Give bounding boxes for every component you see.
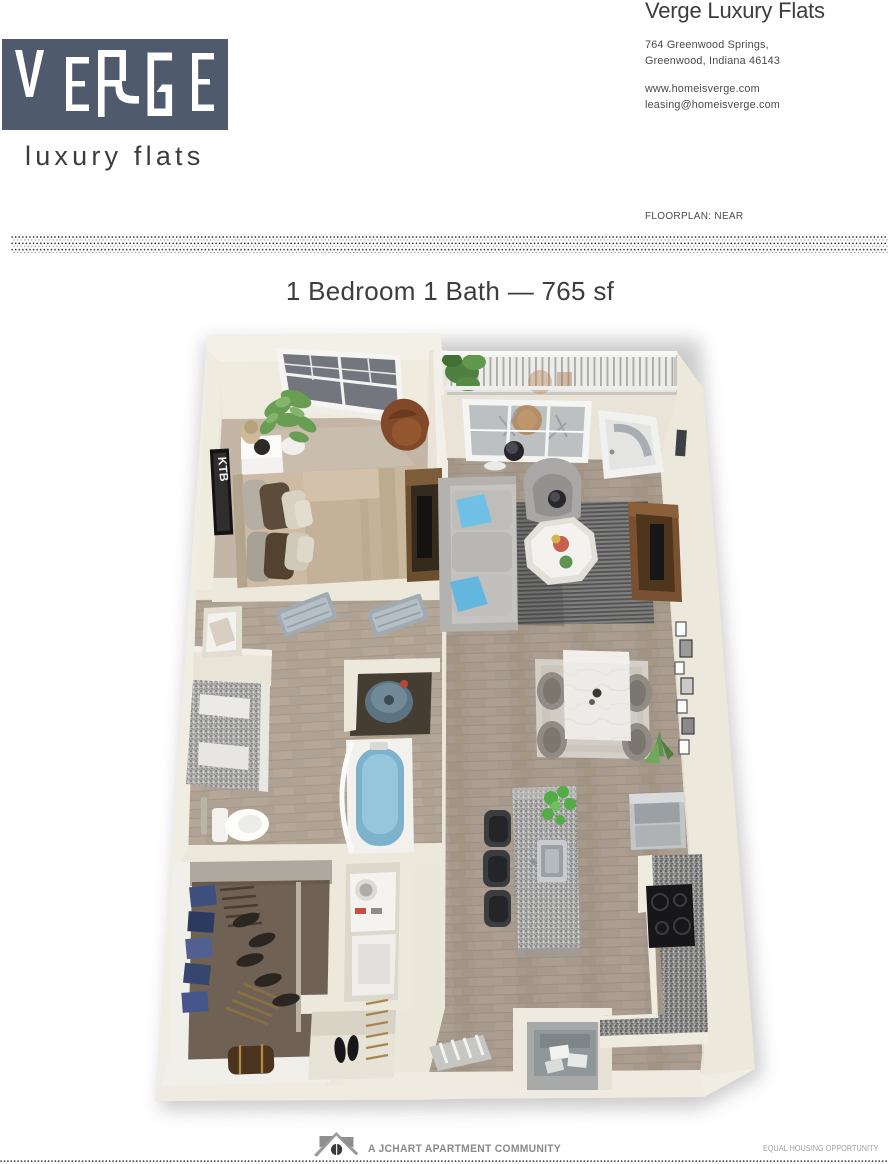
svg-text:KTB: KTB	[215, 456, 231, 482]
